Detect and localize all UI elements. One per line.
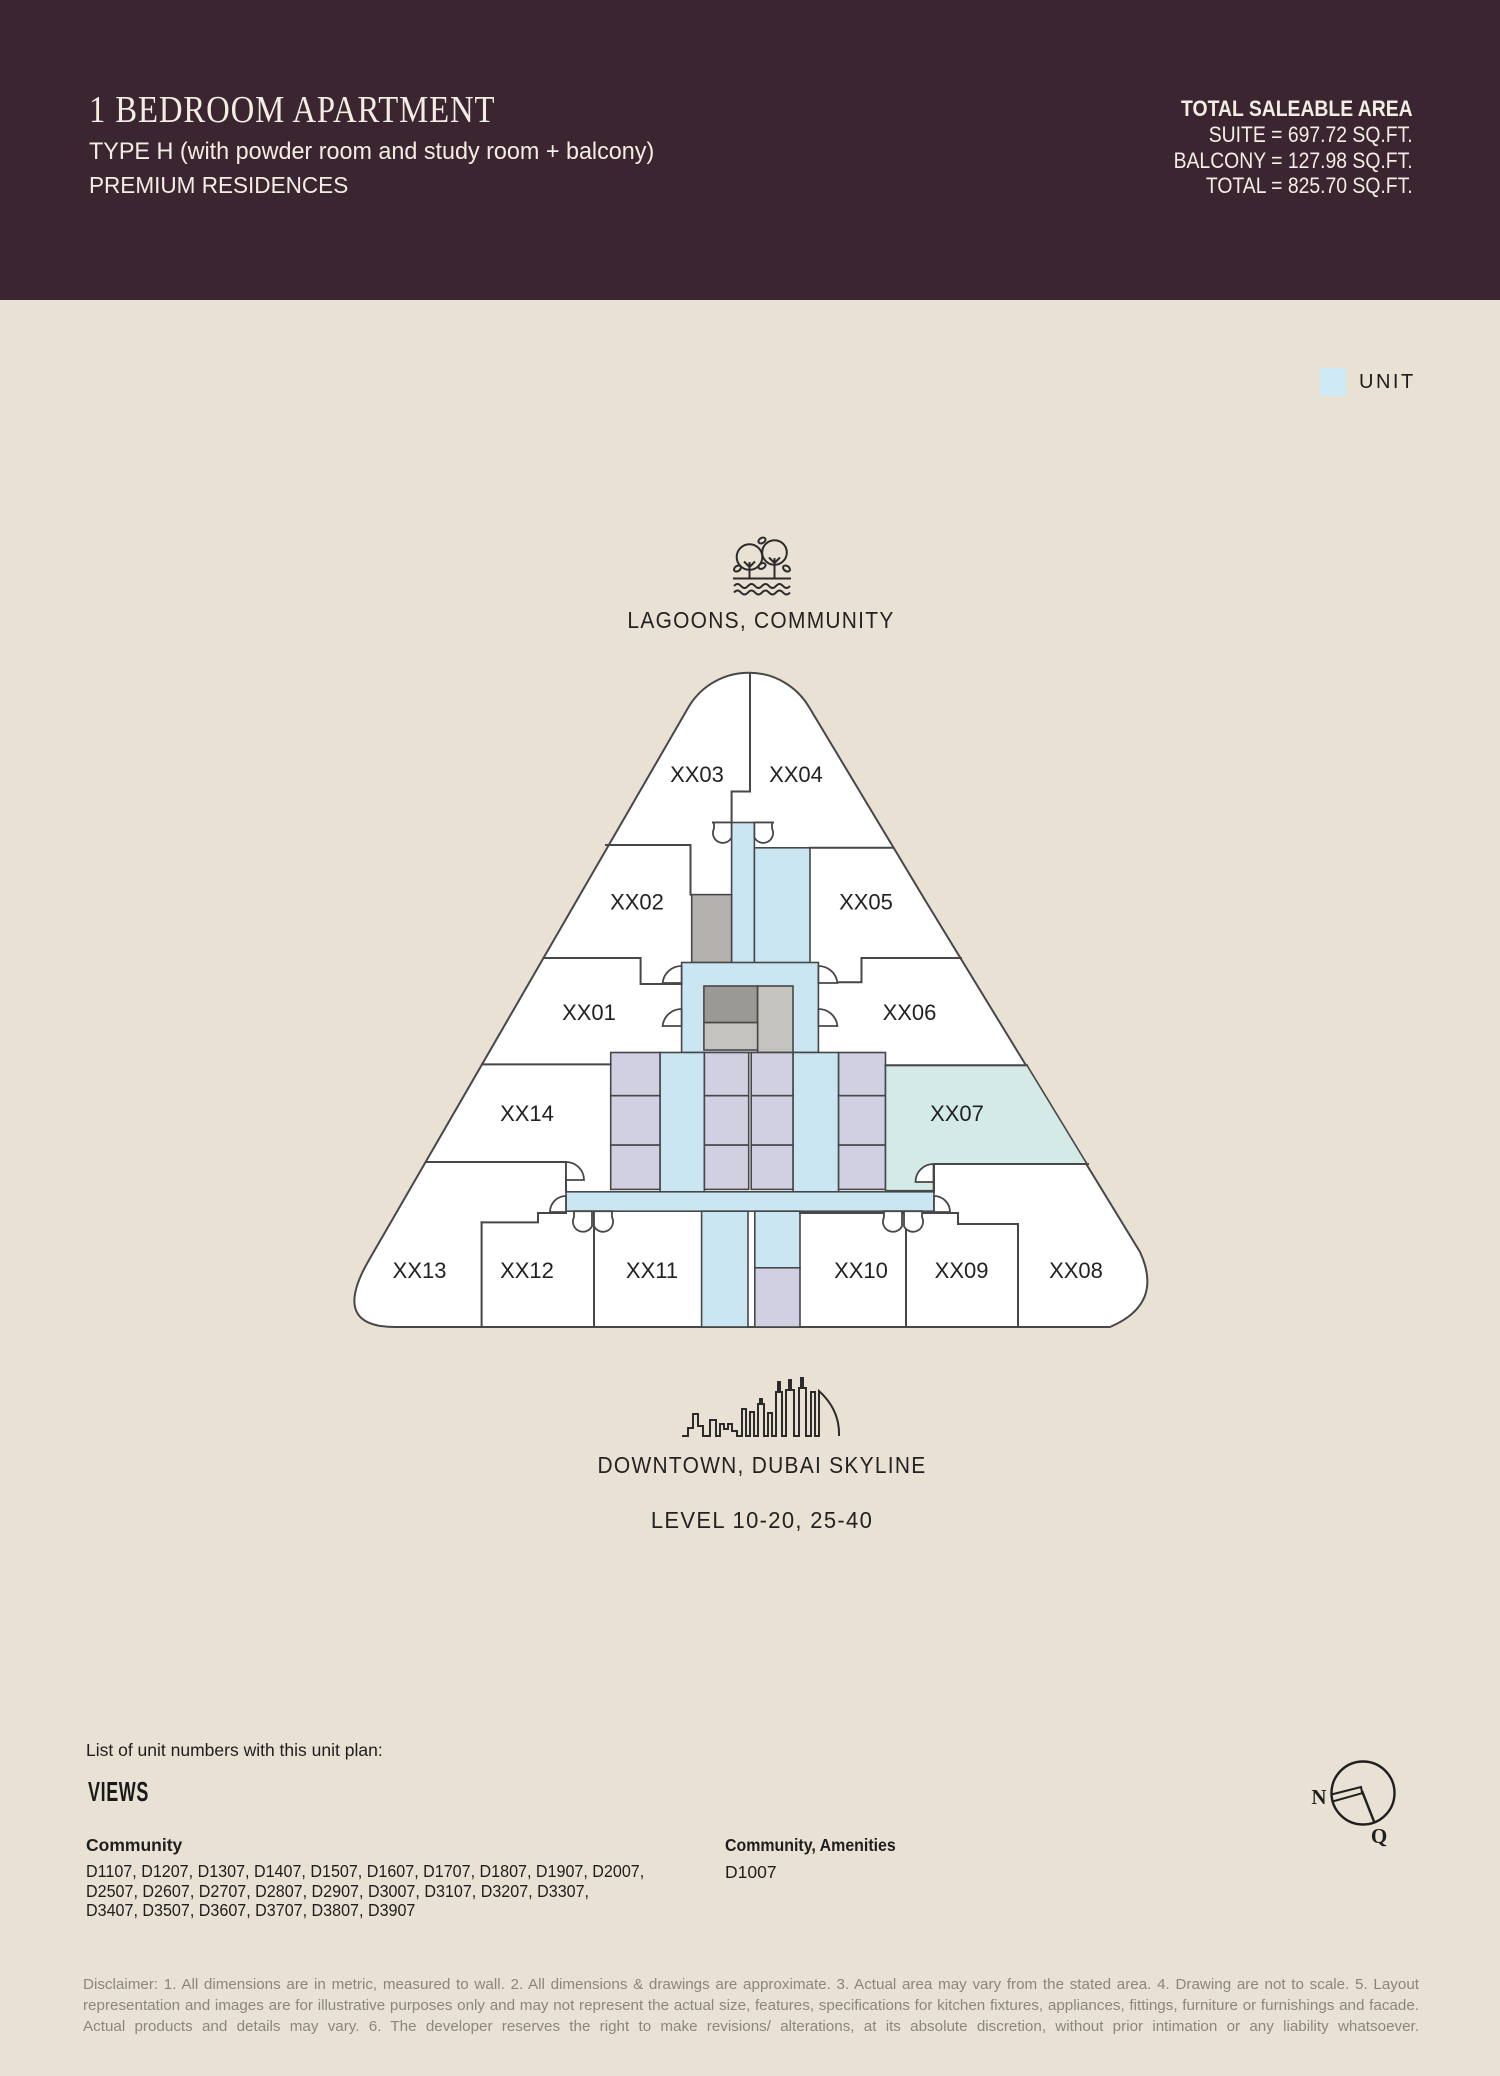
svg-text:XX05: XX05 xyxy=(839,890,893,915)
svg-text:XX04: XX04 xyxy=(769,762,823,787)
svg-text:XX07: XX07 xyxy=(930,1101,984,1126)
svg-text:XX12: XX12 xyxy=(500,1258,554,1283)
svg-text:Q: Q xyxy=(1371,1824,1387,1848)
svg-text:XX01: XX01 xyxy=(562,1000,616,1025)
svg-text:XX02: XX02 xyxy=(610,890,664,915)
svg-text:N: N xyxy=(1311,1785,1326,1809)
svg-text:XX08: XX08 xyxy=(1049,1258,1103,1283)
svg-text:XX11: XX11 xyxy=(626,1258,678,1283)
svg-text:XX06: XX06 xyxy=(883,1000,937,1025)
svg-text:XX03: XX03 xyxy=(670,762,724,787)
svg-text:XX09: XX09 xyxy=(935,1258,989,1283)
svg-text:XX10: XX10 xyxy=(834,1258,888,1283)
svg-text:XX14: XX14 xyxy=(500,1101,554,1126)
svg-text:XX13: XX13 xyxy=(393,1258,447,1283)
